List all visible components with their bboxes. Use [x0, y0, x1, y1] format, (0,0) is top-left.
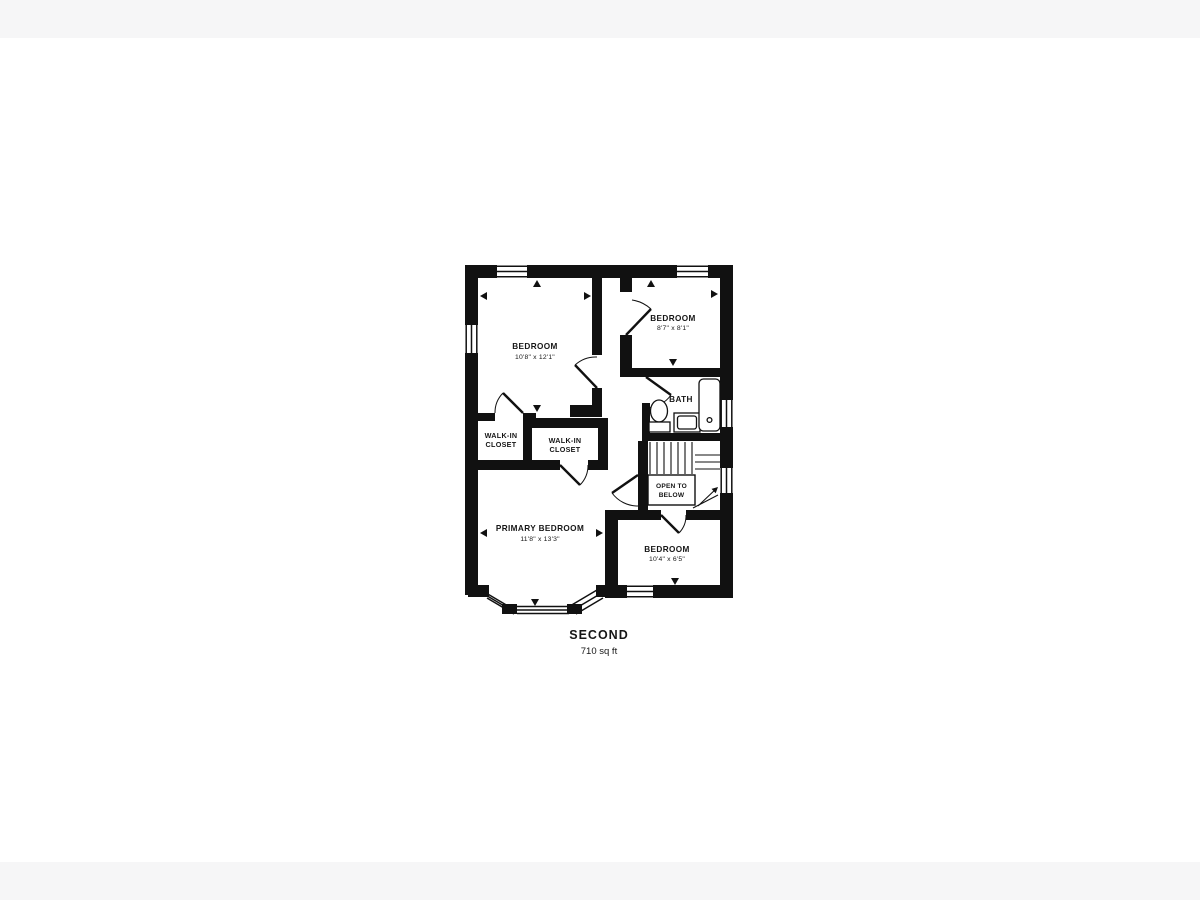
stair-diagonal-line — [693, 495, 718, 508]
marker-tr-right — [711, 290, 718, 298]
stair-landing-lines — [695, 455, 720, 469]
wall-closet-right-top — [532, 418, 608, 428]
wall-primary-br-divider — [605, 510, 618, 598]
bay-window-center-lines — [517, 607, 569, 614]
door-leaf-tl-bedroom — [575, 365, 597, 388]
wall-stair-left — [638, 441, 648, 520]
wall-tl-bedroom-right-lower — [592, 388, 602, 405]
open-to-below-box — [648, 475, 695, 505]
label-open-to-below-line2: BELOW — [659, 492, 685, 499]
wall-primary-top-b — [588, 460, 608, 470]
label-bedroom-br-dims: 10'4" x 6'5" — [649, 556, 685, 563]
wall-closet-left-top-a — [478, 413, 495, 421]
marker-tl-down — [533, 405, 541, 412]
label-closet-right-line1: WALK-IN — [549, 436, 582, 445]
door-leaf-closet-left — [503, 393, 523, 413]
label-bath: BATH — [669, 395, 693, 404]
door-arc-closet-right — [580, 465, 588, 485]
label-closet-left-line2: CLOSET — [486, 440, 517, 449]
marker-br-down — [671, 578, 679, 585]
marker-primary-left — [480, 529, 487, 537]
door-leaf-bath — [646, 377, 671, 395]
wall-stair-bottom-left — [618, 510, 661, 520]
door-arc-primary — [612, 493, 638, 506]
label-bedroom-tl-dims: 10'8" x 12'1" — [515, 354, 555, 361]
wall-tr-bedroom-bottom — [620, 368, 720, 377]
stair-treads — [650, 442, 692, 474]
label-bedroom-tl-name: BEDROOM — [512, 342, 558, 351]
wall-closet-divider — [523, 413, 532, 460]
marker-tl-left — [480, 292, 487, 300]
marker-primary-right — [596, 529, 603, 537]
marker-tl-right — [584, 292, 591, 300]
floor-title: SECOND — [569, 628, 628, 642]
door-leaf-br-bedroom — [661, 515, 679, 533]
right-wall — [720, 265, 733, 598]
marker-tr-up — [647, 280, 655, 287]
door-arc-tl-bedroom — [575, 357, 597, 365]
bay-post-left — [502, 604, 517, 614]
door-arc-br-bedroom — [679, 515, 686, 533]
marker-primary-down — [531, 599, 539, 606]
label-bedroom-br-name: BEDROOM — [644, 545, 690, 554]
bay-window — [468, 585, 617, 614]
wall-stair-bottom-right — [686, 510, 733, 520]
wall-tr-bedroom-left-stub — [620, 278, 632, 292]
wall-bath-bottom — [642, 433, 720, 441]
wall-hall-stub — [570, 405, 602, 417]
marker-tl-up — [533, 280, 541, 287]
wall-tl-bedroom-right-upper — [592, 278, 602, 355]
label-bedroom-tr-dims: 8'7" x 8'1" — [657, 325, 689, 332]
marker-tr-down — [669, 359, 677, 366]
bottom-wall-right — [605, 585, 733, 598]
left-wall — [465, 265, 478, 595]
door-leaf-tr-bedroom — [626, 309, 651, 335]
label-closet-right-line2: CLOSET — [550, 445, 581, 454]
door-arc-closet-left — [495, 393, 503, 413]
door-leaf-closet-right — [560, 465, 580, 485]
sink-basin-icon — [678, 416, 697, 429]
door-leaf-primary — [612, 475, 638, 493]
wall-primary-top-a — [465, 460, 560, 470]
floor-title-block: SECOND 710 sq ft — [569, 628, 628, 657]
door-arc-tr-bedroom — [632, 300, 651, 309]
toilet-icon — [651, 400, 668, 422]
label-closet-left-line1: WALK-IN — [485, 431, 518, 440]
bathtub-drain-icon — [707, 418, 712, 423]
floor-area: 710 sq ft — [581, 646, 618, 657]
label-bedroom-tr-name: BEDROOM — [650, 314, 696, 323]
label-primary-dims: 11'8" x 13'3" — [520, 536, 560, 543]
label-open-to-below-line1: OPEN TO — [656, 483, 687, 490]
toilet-tank-icon — [649, 422, 670, 432]
label-primary-name: PRIMARY BEDROOM — [496, 524, 584, 533]
floorplan-drawing: BEDROOM 10'8" x 12'1" BEDROOM 8'7" x 8'1… — [465, 265, 733, 665]
floorplan-page: BEDROOM 10'8" x 12'1" BEDROOM 8'7" x 8'1… — [0, 0, 1200, 900]
bathtub-icon — [699, 379, 720, 431]
